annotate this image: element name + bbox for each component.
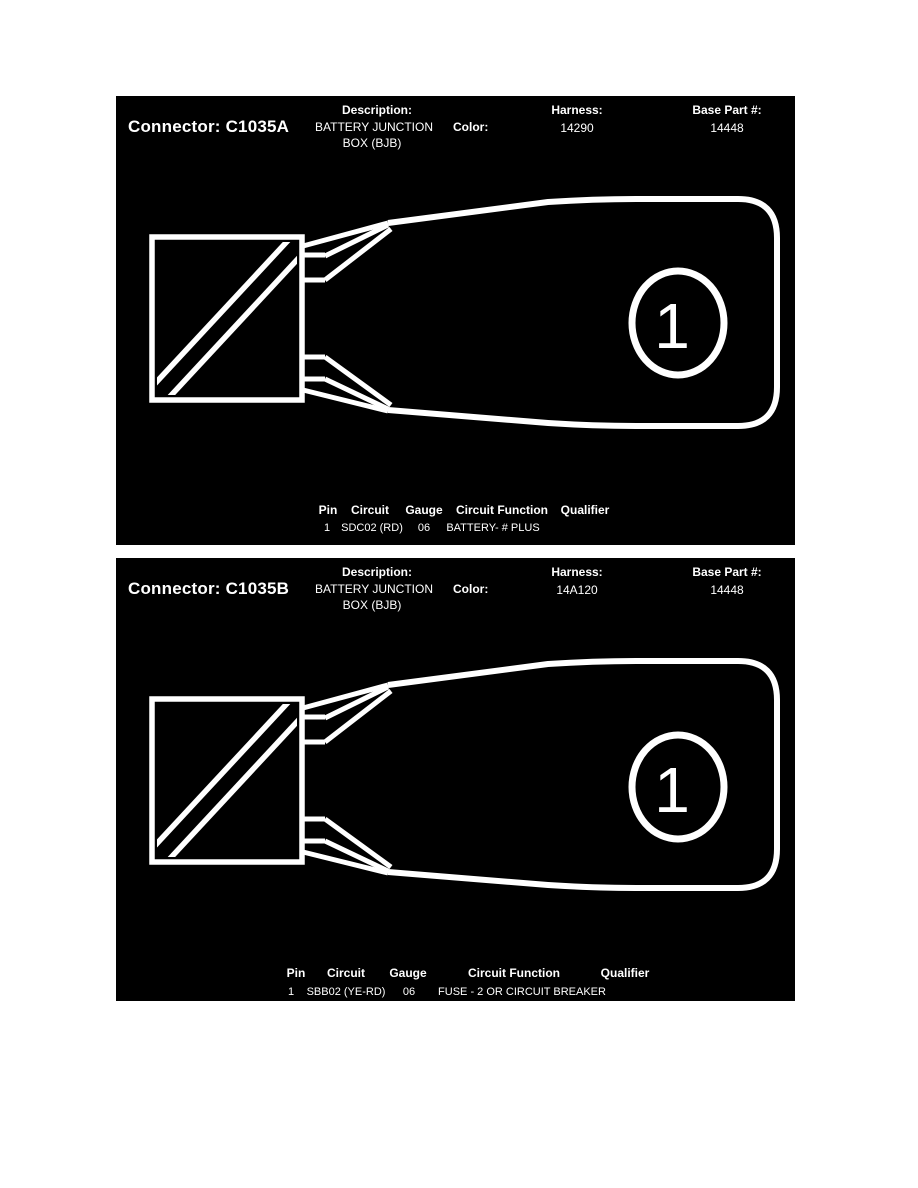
crimp-funnel-lines <box>303 685 391 873</box>
splice-diagonal-stripes <box>150 696 308 865</box>
column-header-circuit: Circuit <box>327 966 365 980</box>
connector-panel-c1035a: Connector: C1035A Description: BATTERY J… <box>116 96 795 545</box>
terminal-callout-number: 1 <box>654 754 690 826</box>
column-header-pin: Pin <box>287 966 306 980</box>
splice-diagonal-stripes <box>150 234 308 403</box>
circuit-function-cell: BATTERY- # PLUS <box>446 522 539 534</box>
column-header-qualifier: Qualifier <box>561 503 610 517</box>
column-header-qualifier: Qualifier <box>601 966 650 980</box>
crimp-stubs <box>302 717 325 841</box>
circuit-cell: SDC02 (RD) <box>341 522 403 534</box>
gauge-cell: 06 <box>418 522 430 534</box>
crimp-stubs <box>302 255 325 379</box>
terminal-body-outline <box>388 199 777 426</box>
circuit-cell: SBB02 (YE-RD) <box>307 986 386 998</box>
terminal-body-outline <box>388 661 777 888</box>
column-header-gauge: Gauge <box>389 966 426 980</box>
circuit-function-cell: FUSE - 2 OR CIRCUIT BREAKER <box>438 986 606 998</box>
connector-panel-c1035b: Connector: C1035B Description: BATTERY J… <box>116 558 795 1001</box>
pin-cell: 1 <box>324 522 330 534</box>
column-header-circuit: Circuit <box>351 503 389 517</box>
pin-cell: 1 <box>288 986 294 998</box>
column-header-pin: Pin <box>319 503 338 517</box>
column-header-circuit-function: Circuit Function <box>468 966 560 980</box>
column-header-circuit-function: Circuit Function <box>456 503 548 517</box>
column-header-gauge: Gauge <box>405 503 442 517</box>
ring-terminal-diagram: 1 <box>116 96 795 545</box>
wire-splice-box <box>152 237 302 400</box>
gauge-cell: 06 <box>403 986 415 998</box>
manual-page: Connector: C1035A Description: BATTERY J… <box>0 0 918 1188</box>
crimp-funnel-lines <box>303 223 391 411</box>
terminal-callout-number: 1 <box>654 290 690 362</box>
ring-terminal-diagram: 1 <box>116 558 795 1001</box>
wire-splice-box <box>152 699 302 862</box>
